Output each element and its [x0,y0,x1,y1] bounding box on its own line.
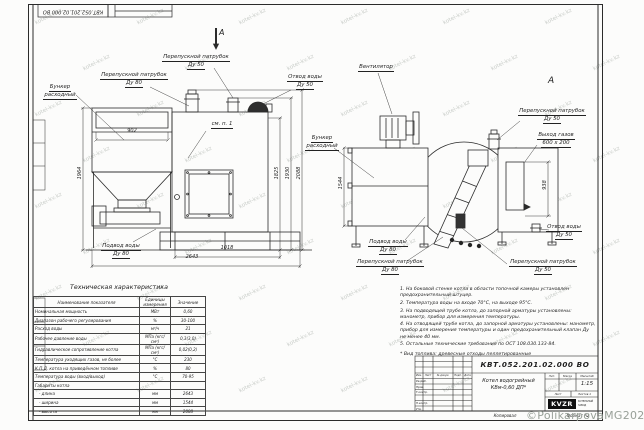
table-row: Гидравлическое сопротивление котлаМПа (к… [34,344,206,355]
note-line: 5. Остальные технические требования по О… [400,342,596,348]
title-block-role-label: Пров. [416,385,424,389]
callout-label: Перепускной патрубокДу 80 [92,72,176,88]
table-cell [140,381,171,390]
tech-table-header-cell: Единицы измерения [140,297,171,308]
fuel-conveyor [434,150,488,248]
dimension-label: 1825 [274,160,280,186]
note-line: 2. Температура воды на входе 70°С, на вы… [400,301,596,307]
table-cell: мм [140,398,171,407]
table-cell: Расход воды [34,325,140,334]
boiler-top-pipes [184,90,272,112]
title-block-col-label: Подп. [453,374,463,377]
callout-label: Перепускной патрубокДу 50 [501,259,585,275]
table-cell: МПа (кгс/см²) [140,333,171,344]
callout-text: см. п. 1 [211,121,234,129]
table-cell: 21 [171,325,206,334]
title-block-col-label: Дата [463,374,472,377]
table-row: - длинамм2643 [34,390,206,399]
dimension-label: 902 [119,128,145,134]
callout-text: Вентилятор [358,64,394,72]
callout-text: Выход газов [537,132,574,140]
callout-text: Ду 50 [534,267,552,275]
table-cell [171,381,206,390]
callout-label: Отвод водыДу 50 [522,224,606,240]
view-mark-letter: А [548,76,554,86]
callout-text: Отвод воды [287,74,323,82]
table-cell: м³/ч [140,325,171,334]
kvzr-logo: KVZR [548,399,576,409]
copyright-watermark: ©PolikarpovaMG2021 [526,409,644,422]
callout-text: Ду 80 [379,247,397,255]
bunker-side [348,148,428,247]
callout-label: Отвод водыДу 50 [263,74,347,90]
note-line: 3. На подводящей трубе котла, до запорно… [400,309,596,321]
title-block-role-label: Разраб. [416,379,427,383]
callout-text: Перепускной патрубок [100,72,168,80]
table-row: Температура уходящих газов, не более°С23… [34,355,206,364]
scale-label: Масштаб [576,374,598,378]
table-row: - высотамм2088 [34,407,206,416]
sheet-label: Лист [545,392,571,396]
table-cell: Номинальная мощность [34,308,140,317]
title-block-col-label: № докум. [433,374,453,377]
drawing-sheet: kotel-kv.kzkotel-kv.kzkotel-kv.kzkotel-k… [0,0,644,430]
table-cell: 230 [171,355,206,364]
callout-label: Перепускной патрубокДу 50 [510,108,594,124]
table-cell: Температура уходящих газов, не более [34,355,140,364]
product-name-line2: КВм-0,60 ДП* [473,385,544,391]
tech-table-title: Техническая характеристика [33,284,205,291]
table-row: К.П.Д. котла на приведённом топливе%80 [34,364,206,373]
callout-text: Ду 80 [112,251,130,259]
callout-text: Бункер [49,84,71,92]
callout-text: Перепускной патрубок [518,108,586,116]
callout-label: Бункеррасходный [18,84,102,100]
callout-label: Перепускной патрубокДу 80 [348,259,432,275]
boiler-front [172,112,268,232]
callout-text: Ду 80 [381,267,399,275]
title-block-col-label: Изм. [415,374,423,377]
callout-label: см. п. 1 [180,121,264,129]
notes-block: 1. На боковой стенке котла в области топ… [400,287,596,360]
section-cut-mark [214,28,219,49]
table-cell: МПа (кгс/см²) [140,344,171,355]
tech-table-header-row: Наименование показателяЕдиницы измерения… [34,297,206,308]
table-cell: Диапазон рабочего регулирования [34,316,140,325]
scale-value: 1:15 [576,381,598,387]
table-row: - ширинамм1544 [34,398,206,407]
dimension-label: 2088 [296,160,302,186]
table-row: Рабочее давление водыМПа (кгс/см²)0,3(3,… [34,333,206,344]
table-row: Габариты котла [34,381,206,390]
table-cell: мм [140,407,171,416]
callout-label: Вентилятор [334,64,418,72]
table-cell: % [140,364,171,373]
product-name-line1: Котел водогрейный [473,378,544,384]
table-cell: 80 [171,364,206,373]
top-stamp-doc-number: КВТ.052.201.02.000 ВО [38,5,108,18]
callout-text: Перепускной патрубок [162,54,230,62]
table-cell: 30-100 [171,316,206,325]
callout-text: Ду 50 [543,116,561,124]
callout-text: расходный [305,143,338,151]
table-cell: 2088 [171,407,206,416]
callout-text: Перепускной патрубок [356,259,424,267]
tech-table: Наименование показателяЕдиницы измерения… [33,296,206,416]
title-block-role-label: Утв. [416,407,422,411]
table-row: Номинальная мощностьМВт0,60 [34,308,206,317]
lit-label: Лит. [545,374,559,378]
table-row: Расход водым³/ч21 [34,325,206,334]
callout-label: Перепускной патрубокДу 50 [154,54,238,70]
callout-text: Ду 50 [187,62,205,70]
dimension-label: 1544 [338,170,344,196]
table-cell: 2643 [171,390,206,399]
table-cell: - длина [34,390,140,399]
logo-caption-line2: ЗАВОД [578,404,586,407]
dimension-label: 1018 [214,245,240,251]
table-cell: 0,02(0,2) [171,344,206,355]
callout-text: Перепускной патрубок [509,259,577,267]
table-row: Температура воды (вход/выход)°С70-95 [34,372,206,381]
note-line: 1. На боковой стенке котла в области топ… [400,287,596,299]
table-cell: 0,3(3,0) [171,333,206,344]
dimension-label: 938 [542,172,548,198]
table-cell: 70-95 [171,372,206,381]
fan [380,112,419,148]
callout-text: Бункер [311,135,333,143]
table-cell: - ширина [34,398,140,407]
table-row: Диапазон рабочего регулирования%30-100 [34,316,206,325]
callout-text: Отвод воды [546,224,582,232]
title-block-doc-number: КВТ.052.201.02.000 ВО [472,356,598,373]
callout-label: Бункеррасходный [280,135,364,151]
table-cell: 1544 [171,398,206,407]
table-cell: 0,60 [171,308,206,317]
title-block-role-label: Н.контр. [416,401,428,405]
callout-text: Ду 50 [296,82,314,90]
mass-label: Масса [559,374,576,378]
callout-label: Выход газов600 x 200 [514,132,598,148]
note-line: 4. На отводящей трубе котла, до запорной… [400,322,596,340]
table-cell: % [140,316,171,325]
table-cell: - высота [34,407,140,416]
tech-table-header-cell: Наименование показателя [34,297,140,308]
callout-text: Подвод воды [368,239,407,247]
table-cell: К.П.Д. котла на приведённом топливе [34,364,140,373]
table-cell: Гидравлическое сопротивление котла [34,344,140,355]
table-cell: Габариты котла [34,381,140,390]
table-cell: Рабочее давление воды [34,333,140,344]
callout-text: Подвод воды [101,243,140,251]
callout-text: расходный [43,92,76,100]
dimension-label: 1964 [77,160,83,186]
dimension-label: 2643 [179,254,205,260]
dimension-label: 1930 [285,160,291,186]
tech-table-header-cell: Значение [171,297,206,308]
callout-text: 600 x 200 [541,140,570,148]
table-cell: Температура воды (вход/выход) [34,372,140,381]
title-block-role-label: Т.контр. [416,390,428,394]
callout-label: Подвод водыДу 80 [79,243,163,259]
table-cell: МВт [140,308,171,317]
section-mark-letter: А [219,28,224,37]
sheets-label: Листов 1 [571,392,598,396]
callout-text: Ду 50 [555,232,573,240]
callout-text: Ду 80 [125,80,143,88]
table-cell: мм [140,390,171,399]
table-cell: °С [140,355,171,364]
callout-label: Подвод водыДу 80 [346,239,430,255]
title-block-col-label: Лист [423,374,433,377]
table-cell: °С [140,372,171,381]
